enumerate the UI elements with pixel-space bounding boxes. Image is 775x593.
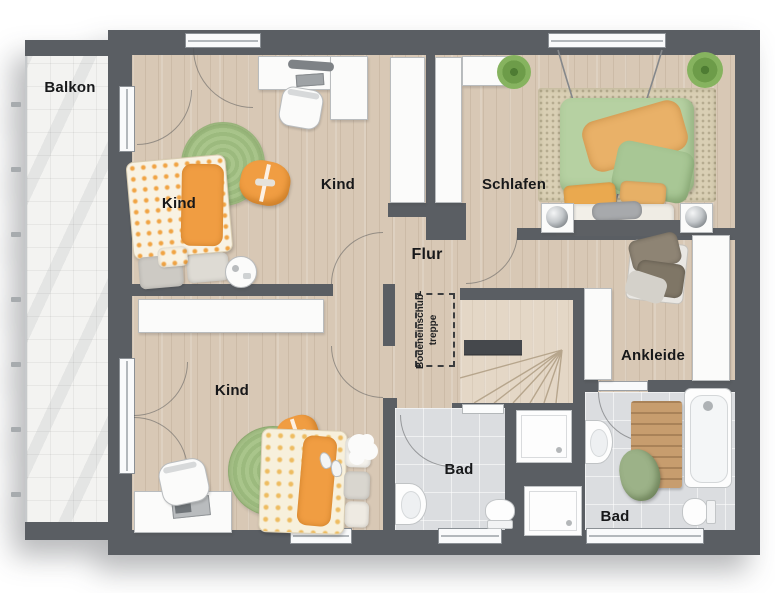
wardrobe-kind-bottom (138, 299, 324, 333)
railing-tick (11, 102, 21, 107)
floorplan-canvas: Balkon (0, 0, 775, 593)
shower-tray (524, 486, 582, 536)
railing-tick (11, 167, 21, 172)
lamp (685, 206, 707, 228)
wall-stair-north (460, 288, 585, 300)
towel-rail (462, 404, 504, 414)
desk-extension (330, 56, 368, 120)
bathtub (684, 388, 732, 488)
desk-chair (277, 85, 325, 132)
window-kind-top (185, 33, 261, 48)
room-label-kind-bottom: Kind (197, 383, 267, 398)
room-label-schlafen: Schlafen (468, 177, 560, 192)
wardrobe-kind-top (390, 57, 425, 203)
door-threshold-bad-right (598, 381, 648, 391)
wardrobe-ankleide-left (584, 288, 612, 380)
wall-ankleide-south-a (585, 380, 598, 392)
clothes-bench (626, 236, 688, 304)
window-bad-right (586, 528, 704, 544)
wardrobe-schlafen (435, 57, 462, 203)
room-label-balkon: Balkon (30, 80, 110, 95)
cloud-table (348, 434, 370, 456)
keyboard (296, 73, 325, 87)
room-label-ankleide: Ankleide (610, 348, 696, 363)
railing-tick (11, 362, 21, 367)
window-bad-center (438, 528, 502, 544)
balcony-top-wall (25, 40, 112, 56)
staircase (460, 300, 573, 403)
railing-tick (11, 297, 21, 302)
room-label-bad-right: Bad (592, 509, 638, 524)
floor-plan: Balkon (0, 0, 775, 593)
wall-kind-schlafen (426, 55, 435, 205)
room-label-kind-mid: Kind (303, 177, 373, 192)
pillow (186, 252, 230, 284)
play-table (225, 256, 257, 288)
wardrobe-ankleide-right (692, 235, 730, 381)
balcony-door-top (119, 86, 135, 152)
railing-tick (11, 232, 21, 237)
stair-opening (464, 340, 522, 355)
railing-tick (11, 492, 21, 497)
blanket-roll (592, 201, 643, 222)
balcony-bottom-wall (25, 522, 112, 540)
bed-kind-top (125, 154, 234, 296)
pillow (157, 245, 189, 268)
room-label-kind-top: Kind (144, 196, 214, 211)
room-label-flur: Flur (393, 247, 461, 263)
wall-flur-west-upper (383, 284, 395, 346)
bow (255, 179, 275, 187)
toilet-tank (487, 520, 513, 529)
room-label-bad-center: Bad (436, 462, 482, 477)
railing-tick (11, 427, 21, 432)
balcony (25, 40, 112, 540)
lamp (546, 206, 568, 228)
wall-schlafen-corner (426, 203, 466, 240)
toilet-tank (706, 500, 716, 524)
pillow (344, 501, 369, 528)
plant (497, 55, 531, 89)
pillow (343, 471, 370, 500)
shower-tray (516, 410, 572, 463)
attic-stair-label: Bodeneinschub- treppe (415, 291, 455, 369)
balcony-door-bottom (119, 358, 135, 474)
plant (687, 52, 723, 88)
bed-bench (556, 220, 698, 236)
toilet (682, 498, 708, 526)
bed-schlafen (556, 94, 698, 234)
bathtub-faucet (703, 401, 713, 411)
